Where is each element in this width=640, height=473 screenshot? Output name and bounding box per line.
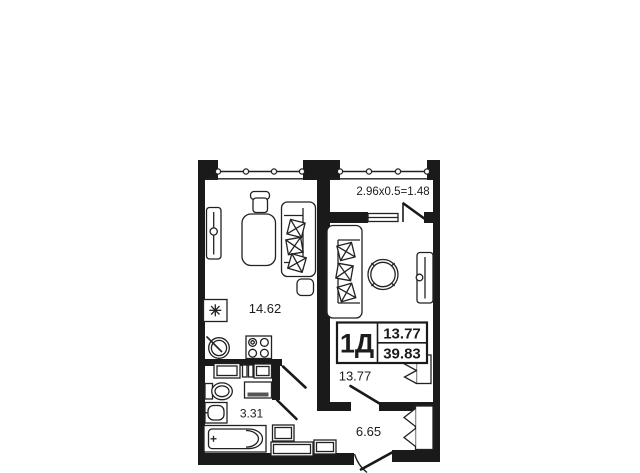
cushion-icon <box>286 237 303 254</box>
living-area-value: 13.77 <box>383 326 421 343</box>
wall-top-left-block <box>198 160 218 180</box>
apartment-type-label: 1Д <box>340 329 374 359</box>
hall-cabinet-icon <box>273 425 295 441</box>
wall-balcony-stub <box>424 212 437 223</box>
balcony-dimension-label: 2.96x0.5=1.48 <box>356 186 429 198</box>
washbasin-icon <box>205 403 227 424</box>
kitchen-sink-icon <box>207 337 230 359</box>
wall-right <box>433 160 440 462</box>
hall-wardrobe-icon <box>404 406 433 450</box>
stove-icon <box>246 336 272 359</box>
balcony-door-swing-icon <box>404 204 428 221</box>
bedroom-area-label: 13.77 <box>339 369 372 384</box>
glazing-post-icon <box>366 169 371 174</box>
glazing-post-icon <box>271 169 276 174</box>
cushion-icon <box>288 254 307 273</box>
cushion-icon <box>287 219 305 237</box>
vanity-cabinets-icon <box>214 364 272 379</box>
cushion-icon <box>337 242 355 260</box>
living-kitchen-room <box>204 192 316 359</box>
hall-cabinet-icon <box>314 440 336 454</box>
wall-bottom-right <box>392 450 440 462</box>
washing-machine-icon <box>245 382 272 398</box>
wall-bedroom-hall-left <box>330 402 351 411</box>
sofa-icon <box>327 226 362 319</box>
total-area-value: 39.83 <box>383 346 421 363</box>
wardrobe-icon <box>416 253 433 304</box>
hall-cabinet-icon <box>271 442 313 456</box>
entrance-door-swing-icon <box>361 453 392 470</box>
fridge-icon <box>204 300 228 322</box>
stool-icon <box>297 279 314 296</box>
toilet-icon <box>205 383 232 400</box>
bathroom-area-label: 3.31 <box>240 407 264 421</box>
table-icon <box>242 214 276 266</box>
apartment-stamp: 1Д 13.77 39.83 <box>337 323 427 364</box>
bathtub-icon <box>204 426 266 453</box>
sofa-icon <box>282 202 316 277</box>
chair-icon <box>251 192 270 213</box>
apartment-floor-plan: 1Д 13.77 39.83 2.96x0.5=1.48 14.62 13.77… <box>0 0 640 473</box>
wall-bathroom-right <box>272 366 280 400</box>
wardrobe-icon <box>207 208 222 260</box>
glazing-post-icon <box>424 169 429 174</box>
cushion-icon <box>336 263 353 280</box>
floor-plan-page: 1Д 13.77 39.83 2.96x0.5=1.48 14.62 13.77… <box>0 0 640 473</box>
glazing-post-icon <box>299 169 304 174</box>
round-table-icon <box>368 260 398 290</box>
cushion-icon <box>337 283 356 302</box>
bedroom-door-swing-icon <box>351 386 380 404</box>
living-kitchen-area-label: 14.62 <box>249 301 282 316</box>
glazing-post-icon <box>243 169 248 174</box>
wall-top-middle-block <box>303 160 340 180</box>
glazing-post-icon <box>215 169 220 174</box>
glazing-post-icon <box>395 169 400 174</box>
wall-balcony-bedroom <box>330 212 368 223</box>
hallway-area-label: 6.65 <box>356 424 381 439</box>
glazing-post-icon <box>337 169 342 174</box>
kitchen-door-swing-icon <box>283 367 306 388</box>
bathroom-door-swing-icon <box>277 400 297 419</box>
hallway-room <box>271 406 433 456</box>
